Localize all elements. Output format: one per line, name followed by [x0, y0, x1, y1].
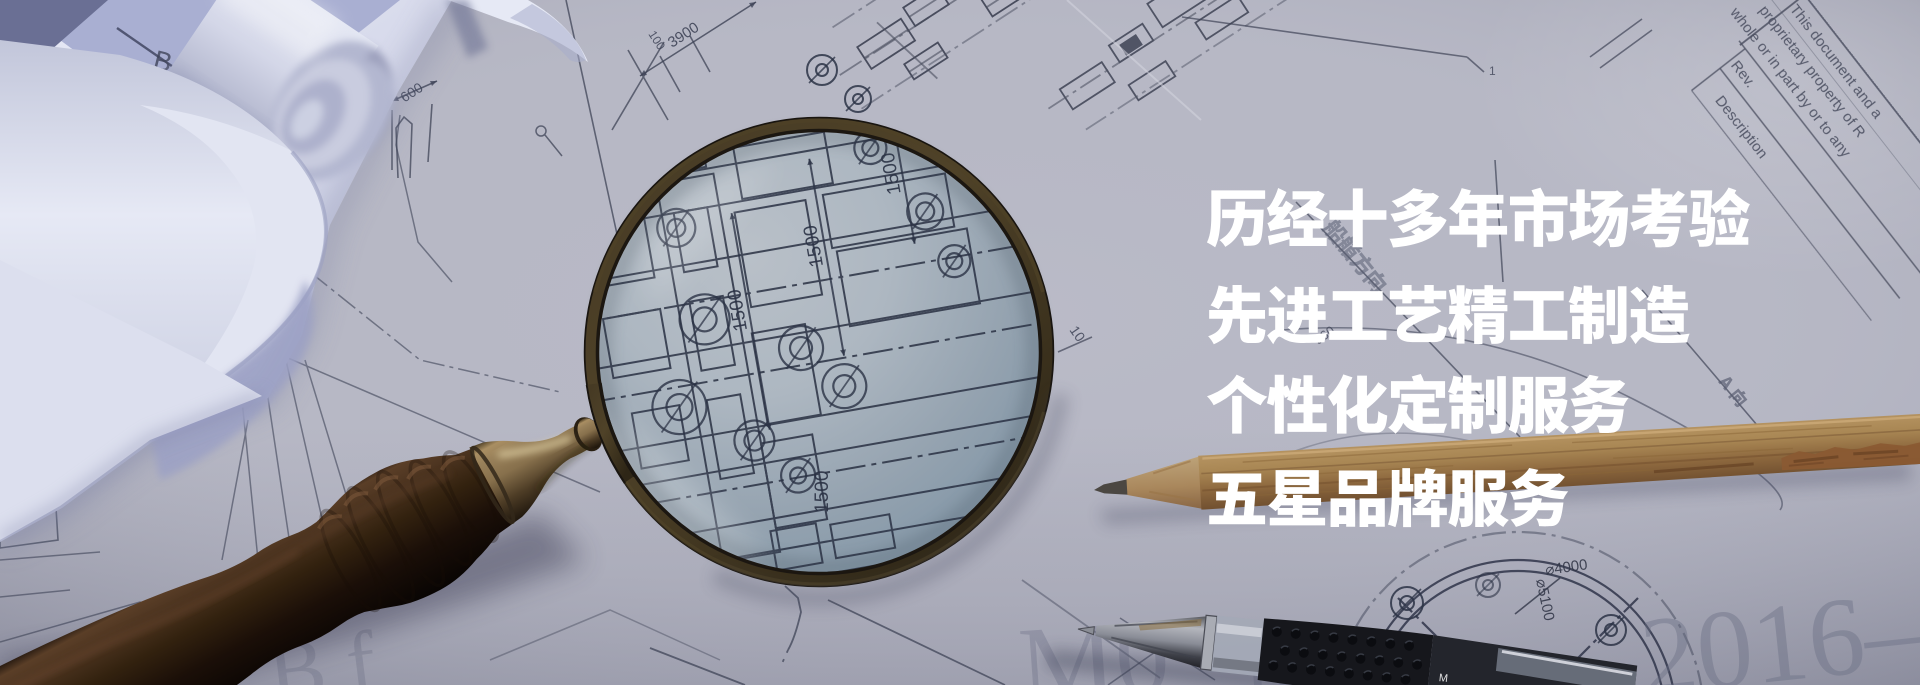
svg-text:1500: 1500	[812, 471, 833, 513]
svg-text:M: M	[1438, 672, 1448, 685]
svg-text:1: 1	[1489, 64, 1496, 78]
